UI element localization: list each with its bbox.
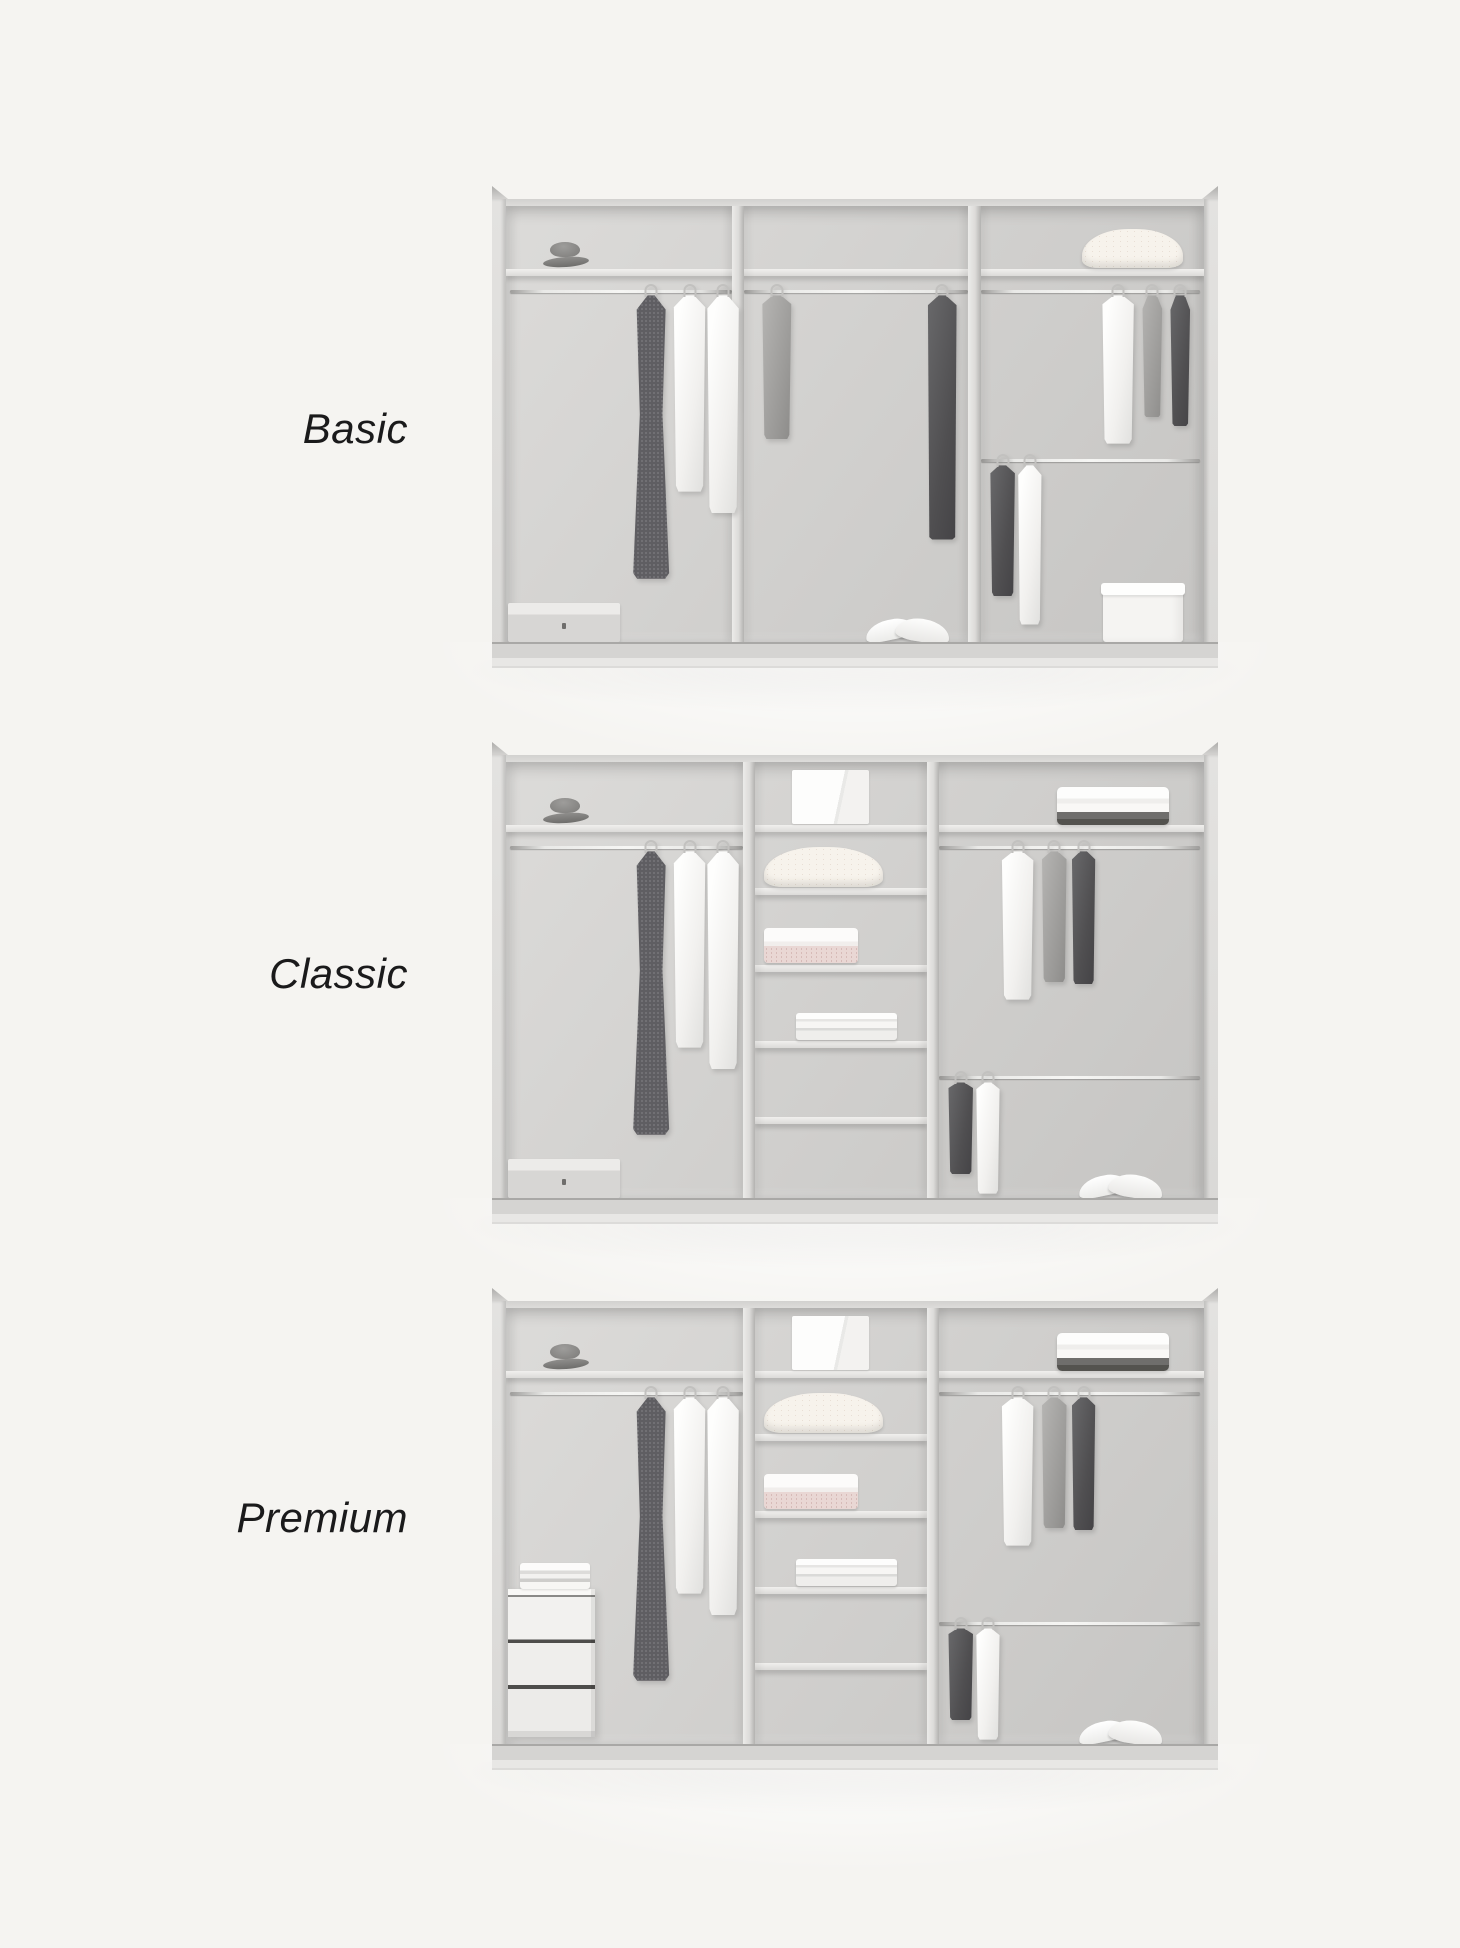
hanger-hook: [1048, 1386, 1061, 1399]
tier-label-premium: Premium: [60, 1492, 408, 1544]
section-divider-2: [927, 1308, 939, 1744]
white-shirt-body: [1017, 465, 1043, 624]
white-shirt: [706, 295, 741, 513]
white-shirt-body: [706, 295, 741, 513]
white-sneakers: [1078, 1170, 1162, 1198]
top-shelf: [506, 269, 1204, 276]
rail-left: [510, 846, 743, 849]
middle-shelf-1: [755, 1434, 927, 1441]
white-shirt-body: [1000, 851, 1035, 999]
wardrobe-left-wall: [492, 199, 506, 668]
wardrobe-interior: [506, 762, 1204, 1198]
white-box: [792, 1316, 869, 1371]
patterned-dress-body: [632, 1397, 671, 1680]
wardrobe-right-wall: [1204, 199, 1218, 668]
wardrobe-plinth: [492, 1198, 1218, 1224]
white-shirt-body: [975, 1082, 1001, 1193]
hanger-hook: [683, 840, 696, 853]
rail-right-top: [981, 290, 1200, 293]
hanger-hook: [717, 840, 730, 853]
dark-shirt-body: [947, 1082, 974, 1174]
patterned-dress-body: [632, 295, 671, 578]
white-shirt: [706, 1397, 741, 1615]
white-shirt-body: [1000, 1397, 1035, 1545]
dark-top: [1168, 295, 1193, 426]
white-shirt-body: [672, 851, 707, 1047]
gray-cardigan-body: [761, 295, 793, 439]
hanger-hook: [717, 284, 730, 297]
hanger-hook: [1077, 840, 1090, 853]
section-divider-1: [743, 762, 755, 1198]
middle-shelf-4: [755, 1663, 927, 1670]
wardrobe-plinth: [492, 642, 1218, 668]
wardrobe-right-wall: [1204, 755, 1218, 1224]
middle-shelf-2: [755, 965, 927, 972]
wardrobe-plinth: [492, 1744, 1218, 1770]
top-shelf: [506, 825, 1204, 832]
hanger-hook: [1011, 1386, 1024, 1399]
dark-top-body: [1168, 295, 1193, 426]
dark-shirt-body: [947, 1628, 974, 1720]
white-shirt: [1000, 1397, 1035, 1545]
folded-shirts-stack: [796, 1559, 897, 1586]
tier-label-classic: Classic: [60, 948, 408, 1000]
folded-clothes-stack: [1057, 787, 1169, 824]
wardrobe-interior: [506, 1308, 1204, 1744]
white-shirt: [706, 851, 741, 1069]
dark-shirt-body: [1071, 1397, 1097, 1530]
top-shelf: [506, 1371, 1204, 1378]
rail-right-lower: [939, 1076, 1200, 1079]
rail-right-top: [939, 1392, 1200, 1395]
hanger-hook: [954, 1071, 967, 1084]
white-shirt: [1101, 295, 1136, 443]
wardrobe-left-wall: [492, 1301, 506, 1770]
middle-shelf-4: [755, 1117, 927, 1124]
hanger-hook: [1077, 1386, 1090, 1399]
drawer-unit: [508, 1589, 595, 1737]
white-shirt: [975, 1082, 1001, 1193]
section-divider-2: [968, 206, 981, 642]
flat-storage-box: [508, 1159, 620, 1198]
wardrobe-interior: [506, 206, 1204, 642]
hanger-hook: [683, 284, 696, 297]
gray-hat: [543, 1344, 589, 1369]
hanger-hook: [1023, 454, 1036, 467]
folded-blanket: [764, 1393, 883, 1433]
patterned-dress-body: [632, 851, 671, 1134]
middle-shelf-1: [755, 888, 927, 895]
folded-blanket: [764, 847, 883, 887]
white-shirt-body: [706, 851, 741, 1069]
white-sneakers: [1078, 1716, 1162, 1744]
folded-clothes-stack: [1057, 1333, 1169, 1370]
section-divider-2: [927, 762, 939, 1198]
dark-shirt: [1071, 851, 1097, 984]
dark-shirt: [989, 465, 1016, 596]
middle-shelf-2: [755, 1511, 927, 1518]
rail-right-lower: [981, 459, 1200, 462]
folded-linen-stack: [764, 1474, 858, 1510]
gray-tank-top-body: [1140, 295, 1165, 417]
wardrobe-classic: [492, 742, 1218, 1224]
middle-shelf-3: [755, 1041, 927, 1048]
middle-shelf-3: [755, 1587, 927, 1594]
gray-shirt-body: [1041, 851, 1068, 982]
white-sneakers: [865, 614, 949, 642]
white-shirt: [975, 1628, 1001, 1739]
hanger-hook: [1174, 284, 1187, 297]
patterned-dress: [632, 1397, 671, 1680]
wardrobe-right-wall: [1204, 1301, 1218, 1770]
folded-towels: [520, 1563, 590, 1589]
wardrobe-top-panel: [492, 742, 1218, 762]
hanger-hook: [936, 284, 949, 297]
dark-shirt: [947, 1628, 974, 1720]
hanger-hook: [645, 1386, 658, 1399]
section-divider-1: [743, 1308, 755, 1744]
tier-label-basic: Basic: [60, 403, 408, 455]
rail-right-lower: [939, 1622, 1200, 1625]
rail-right-top: [939, 846, 1200, 849]
white-shirt-body: [1101, 295, 1136, 443]
flat-storage-box: [508, 603, 620, 642]
patterned-dress: [632, 295, 671, 578]
dark-shirt: [947, 1082, 974, 1174]
hanger-hook: [954, 1617, 967, 1630]
hanger-hook: [1048, 840, 1061, 853]
white-storage-box: [1103, 583, 1183, 642]
dark-shirt-body: [1071, 851, 1097, 984]
white-shirt-body: [672, 1397, 707, 1593]
gray-shirt-body: [1041, 1397, 1068, 1528]
wardrobe-basic: [492, 186, 1218, 668]
hanger-hook: [1112, 284, 1125, 297]
white-shirt: [672, 1397, 707, 1593]
hanger-hook: [717, 1386, 730, 1399]
hanger-hook: [996, 454, 1009, 467]
hanger-hook: [981, 1617, 994, 1630]
white-shirt: [672, 295, 707, 491]
dark-shirt-body: [989, 465, 1016, 596]
gray-hat: [543, 798, 589, 823]
dark-shirt: [1071, 1397, 1097, 1530]
folded-linen-stack: [764, 928, 858, 964]
patterned-dress: [632, 851, 671, 1134]
folded-shirts-stack: [796, 1013, 897, 1040]
white-shirt: [672, 851, 707, 1047]
wardrobe-top-panel: [492, 186, 1218, 206]
white-shirt: [1017, 465, 1043, 624]
white-shirt-body: [975, 1628, 1001, 1739]
white-shirt-body: [672, 295, 707, 491]
white-shirt-body: [706, 1397, 741, 1615]
wardrobe-left-wall: [492, 755, 506, 1224]
dark-coat: [925, 295, 960, 539]
gray-tank-top: [1140, 295, 1165, 417]
dark-coat-body: [925, 295, 960, 539]
hanger-hook: [683, 1386, 696, 1399]
folded-blanket: [1082, 229, 1183, 268]
rail-left: [510, 290, 732, 293]
white-box: [792, 770, 869, 825]
wardrobe-top-panel: [492, 1288, 1218, 1308]
rail-left: [510, 1392, 743, 1395]
wardrobe-premium: [492, 1288, 1218, 1770]
hanger-hook: [645, 284, 658, 297]
hanger-hook: [981, 1071, 994, 1084]
gray-shirt: [1041, 851, 1068, 982]
hanger-hook: [645, 840, 658, 853]
hanger-hook: [1011, 840, 1024, 853]
white-shirt: [1000, 851, 1035, 999]
hanger-hook: [1146, 284, 1159, 297]
gray-hat: [543, 242, 589, 267]
hanger-hook: [770, 284, 783, 297]
gray-shirt: [1041, 1397, 1068, 1528]
gray-cardigan: [761, 295, 793, 439]
wardrobe-comparison-page: { "colors": { "page_background": "#f5f4f…: [0, 0, 1460, 1948]
